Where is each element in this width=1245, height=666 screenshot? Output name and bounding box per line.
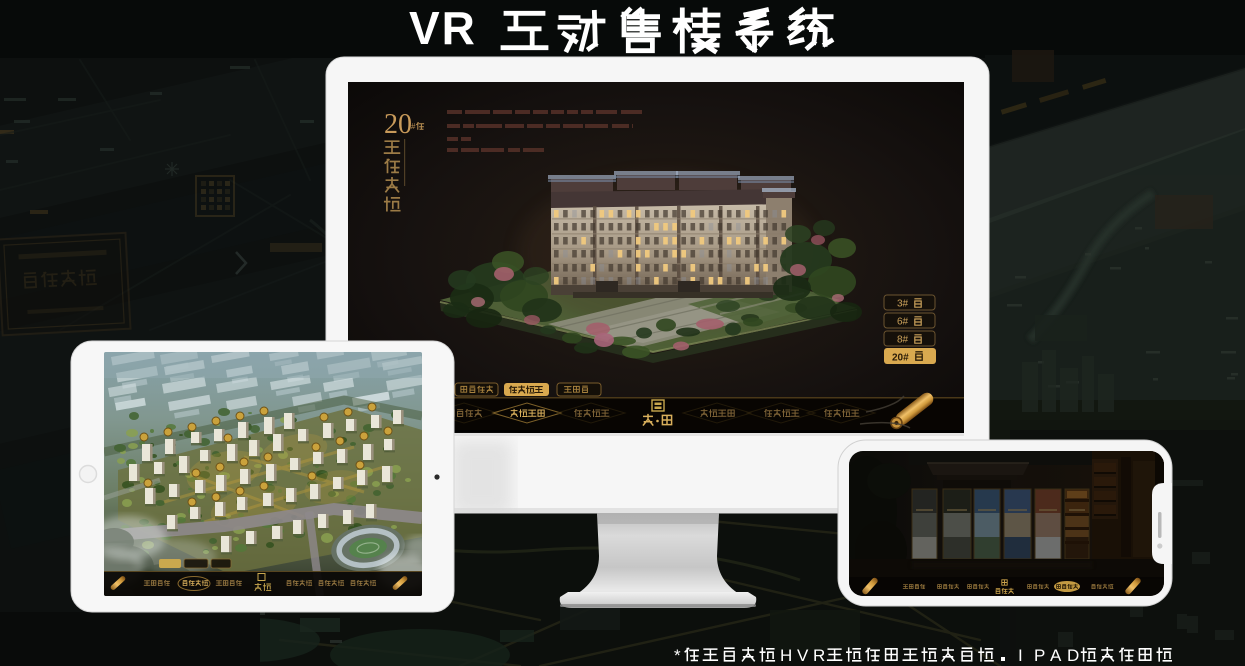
svg-text:A: A <box>1050 646 1062 665</box>
svg-text:20: 20 <box>384 109 412 140</box>
svg-text:H: H <box>780 646 792 665</box>
svg-text:VR: VR <box>409 2 477 54</box>
svg-text:D: D <box>1067 646 1079 665</box>
svg-text:V: V <box>797 646 809 665</box>
svg-text:P: P <box>1034 646 1045 665</box>
svg-text:20#: 20# <box>892 353 909 364</box>
svg-text:*: * <box>674 646 681 665</box>
svg-text:#: # <box>411 122 416 131</box>
svg-text:8#: 8# <box>897 335 909 346</box>
svg-text:6#: 6# <box>897 317 909 328</box>
svg-text:I: I <box>1018 646 1023 665</box>
svg-text:R: R <box>813 646 825 665</box>
svg-text:3#: 3# <box>897 299 909 310</box>
